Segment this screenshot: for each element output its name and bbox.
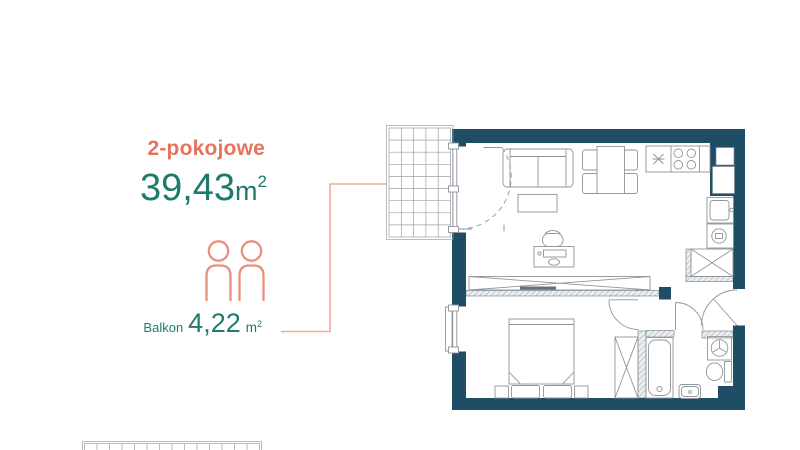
nightstand-icon <box>575 386 589 398</box>
bathtub-icon <box>646 338 673 399</box>
ventilation-shaft-icon <box>713 148 735 194</box>
stove-icon <box>674 149 696 169</box>
person-icon <box>205 240 232 301</box>
bedroom-door <box>609 300 639 330</box>
page-background: 2-pokojowe 39,43m2 Balkon 4,22 m2 <box>0 0 800 450</box>
interior-walls <box>466 249 733 398</box>
person-icon <box>238 240 265 301</box>
fridge-icon <box>653 154 665 164</box>
dining-set-icon <box>583 147 638 194</box>
toilet-icon <box>706 362 731 383</box>
floor-plan <box>0 0 800 450</box>
kitchen-sink-icon <box>707 198 734 224</box>
balcony-unit-sup: 2 <box>257 319 262 329</box>
washing-machine-icon <box>708 337 732 361</box>
balcony-grid <box>387 126 454 240</box>
bedroom-window <box>446 305 459 353</box>
coffee-table-icon <box>518 195 557 213</box>
balcony-area: Balkon 4,22 m2 <box>60 310 262 337</box>
bed-icon <box>509 319 574 398</box>
area-unit-sup: 2 <box>258 172 267 191</box>
dishwasher-icon <box>707 224 734 248</box>
unit-type-label: 2-pokojowe <box>60 137 265 161</box>
bathroom-door <box>676 303 704 331</box>
nightstand-icon <box>495 386 509 398</box>
bedroom-wardrobe-icon <box>615 337 638 398</box>
balcony-label: Balkon <box>143 321 183 334</box>
balcony-value: 4,22 <box>188 310 241 337</box>
sliding-wardrobe-icon <box>469 277 650 291</box>
apartment-area: 39,43m2 <box>60 169 267 207</box>
adjacent-plan-fragment <box>83 442 262 450</box>
sofa-icon <box>503 149 573 187</box>
occupancy-icons <box>205 240 265 301</box>
area-value: 39,43 <box>140 167 235 209</box>
balcony-door <box>449 143 512 233</box>
area-unit: m <box>235 176 258 206</box>
washbasin-icon <box>679 385 701 399</box>
entrance-door <box>702 290 738 326</box>
desk-icon <box>534 231 574 268</box>
balcony-unit: m2 <box>246 320 262 335</box>
entrance-wardrobe-icon <box>691 249 733 277</box>
balcony-connector-line <box>281 184 386 332</box>
